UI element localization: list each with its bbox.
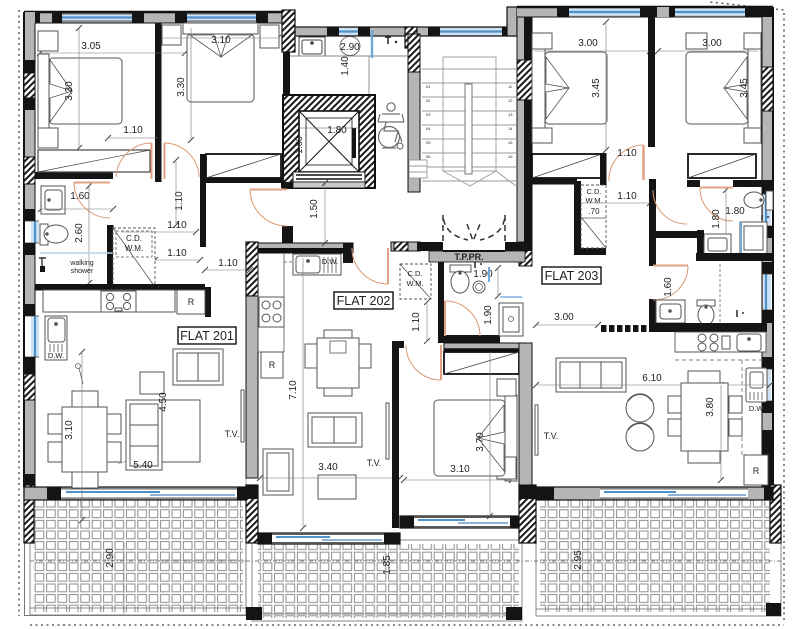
svg-text:1.10: 1.10 bbox=[167, 248, 187, 259]
svg-text:W.M.: W.M. bbox=[585, 196, 602, 205]
svg-text:T.V.: T.V. bbox=[367, 458, 382, 468]
svg-text:1.80: 1.80 bbox=[711, 209, 722, 229]
svg-text:D.W.: D.W. bbox=[749, 404, 765, 413]
svg-text:D.W.: D.W. bbox=[322, 257, 338, 266]
svg-text:04: 04 bbox=[426, 126, 431, 131]
svg-text:3.10: 3.10 bbox=[64, 420, 75, 440]
svg-text:3.05: 3.05 bbox=[81, 41, 101, 52]
svg-text:16: 16 bbox=[508, 154, 513, 159]
svg-text:FLAT 203: FLAT 203 bbox=[545, 269, 599, 283]
svg-text:1.10: 1.10 bbox=[218, 258, 238, 269]
svg-text:R: R bbox=[269, 360, 276, 370]
svg-text:1.80: 1.80 bbox=[327, 125, 347, 136]
svg-text:R: R bbox=[188, 297, 195, 307]
svg-text:1.90: 1.90 bbox=[483, 305, 494, 325]
svg-text:W.M.: W.M. bbox=[125, 244, 143, 253]
svg-text:1.90: 1.90 bbox=[473, 269, 493, 280]
svg-text:W.M.: W.M. bbox=[406, 279, 423, 288]
svg-text:2.60: 2.60 bbox=[74, 223, 85, 243]
svg-text:D.W.: D.W. bbox=[48, 351, 64, 360]
svg-text:6.10: 6.10 bbox=[642, 373, 662, 384]
svg-text:13: 13 bbox=[508, 112, 513, 117]
svg-text:3.40: 3.40 bbox=[318, 462, 338, 473]
svg-text:3.00: 3.00 bbox=[578, 38, 598, 49]
svg-text:R: R bbox=[753, 466, 760, 476]
svg-text:1.10: 1.10 bbox=[617, 148, 637, 159]
svg-text:4.50: 4.50 bbox=[158, 392, 169, 412]
svg-text:walking: walking bbox=[69, 260, 93, 267]
svg-text:T.V.: T.V. bbox=[544, 431, 559, 441]
svg-text:1.80: 1.80 bbox=[294, 136, 304, 154]
svg-text:15: 15 bbox=[508, 140, 513, 145]
svg-text:C.D.: C.D. bbox=[408, 269, 423, 278]
svg-text:1.10: 1.10 bbox=[123, 125, 143, 136]
svg-text:3.00: 3.00 bbox=[702, 38, 722, 49]
svg-text:1.80: 1.80 bbox=[725, 206, 745, 217]
svg-text:2.95: 2.95 bbox=[573, 550, 584, 570]
svg-text:3.45: 3.45 bbox=[591, 78, 602, 98]
svg-text:2.90: 2.90 bbox=[105, 548, 116, 568]
svg-text:03: 03 bbox=[426, 112, 431, 117]
svg-text:3.80: 3.80 bbox=[705, 397, 716, 417]
svg-text:01: 01 bbox=[426, 84, 431, 89]
svg-text:3.10: 3.10 bbox=[211, 35, 231, 46]
svg-text:06: 06 bbox=[426, 154, 431, 159]
svg-text:shower: shower bbox=[71, 268, 94, 275]
svg-text:.70: .70 bbox=[588, 207, 600, 216]
svg-text:1.85: 1.85 bbox=[382, 555, 393, 575]
svg-text:1.10: 1.10 bbox=[617, 191, 637, 202]
svg-text:7.10: 7.10 bbox=[288, 380, 299, 400]
svg-text:3.10: 3.10 bbox=[450, 464, 470, 475]
svg-text:1.60: 1.60 bbox=[70, 191, 90, 202]
svg-text:12: 12 bbox=[508, 98, 513, 103]
svg-text:3.45: 3.45 bbox=[739, 78, 750, 98]
svg-text:3.00: 3.00 bbox=[554, 312, 574, 323]
svg-text:2.90: 2.90 bbox=[340, 42, 360, 53]
svg-text:1.40: 1.40 bbox=[340, 56, 351, 76]
svg-text:FLAT 202: FLAT 202 bbox=[337, 294, 391, 308]
svg-text:C.D.: C.D. bbox=[587, 187, 602, 196]
svg-text:FLAT 201: FLAT 201 bbox=[180, 329, 234, 343]
svg-text:1.10: 1.10 bbox=[167, 220, 187, 231]
svg-text:1.60: 1.60 bbox=[663, 277, 674, 297]
svg-text:1.10: 1.10 bbox=[411, 312, 422, 332]
svg-text:02: 02 bbox=[426, 98, 431, 103]
svg-text:1.50: 1.50 bbox=[309, 199, 320, 219]
svg-text:T.V.: T.V. bbox=[225, 429, 240, 439]
svg-text:05: 05 bbox=[426, 140, 431, 145]
svg-text:3.70: 3.70 bbox=[475, 432, 486, 452]
svg-text:14: 14 bbox=[508, 126, 513, 131]
svg-text:3.30: 3.30 bbox=[64, 81, 75, 101]
svg-text:C.D.: C.D. bbox=[126, 234, 142, 243]
svg-text:1.10: 1.10 bbox=[174, 191, 185, 211]
svg-text:T.P.PR.: T.P.PR. bbox=[454, 252, 483, 262]
svg-text:3.30: 3.30 bbox=[176, 77, 187, 97]
svg-text:5.40: 5.40 bbox=[133, 460, 153, 471]
